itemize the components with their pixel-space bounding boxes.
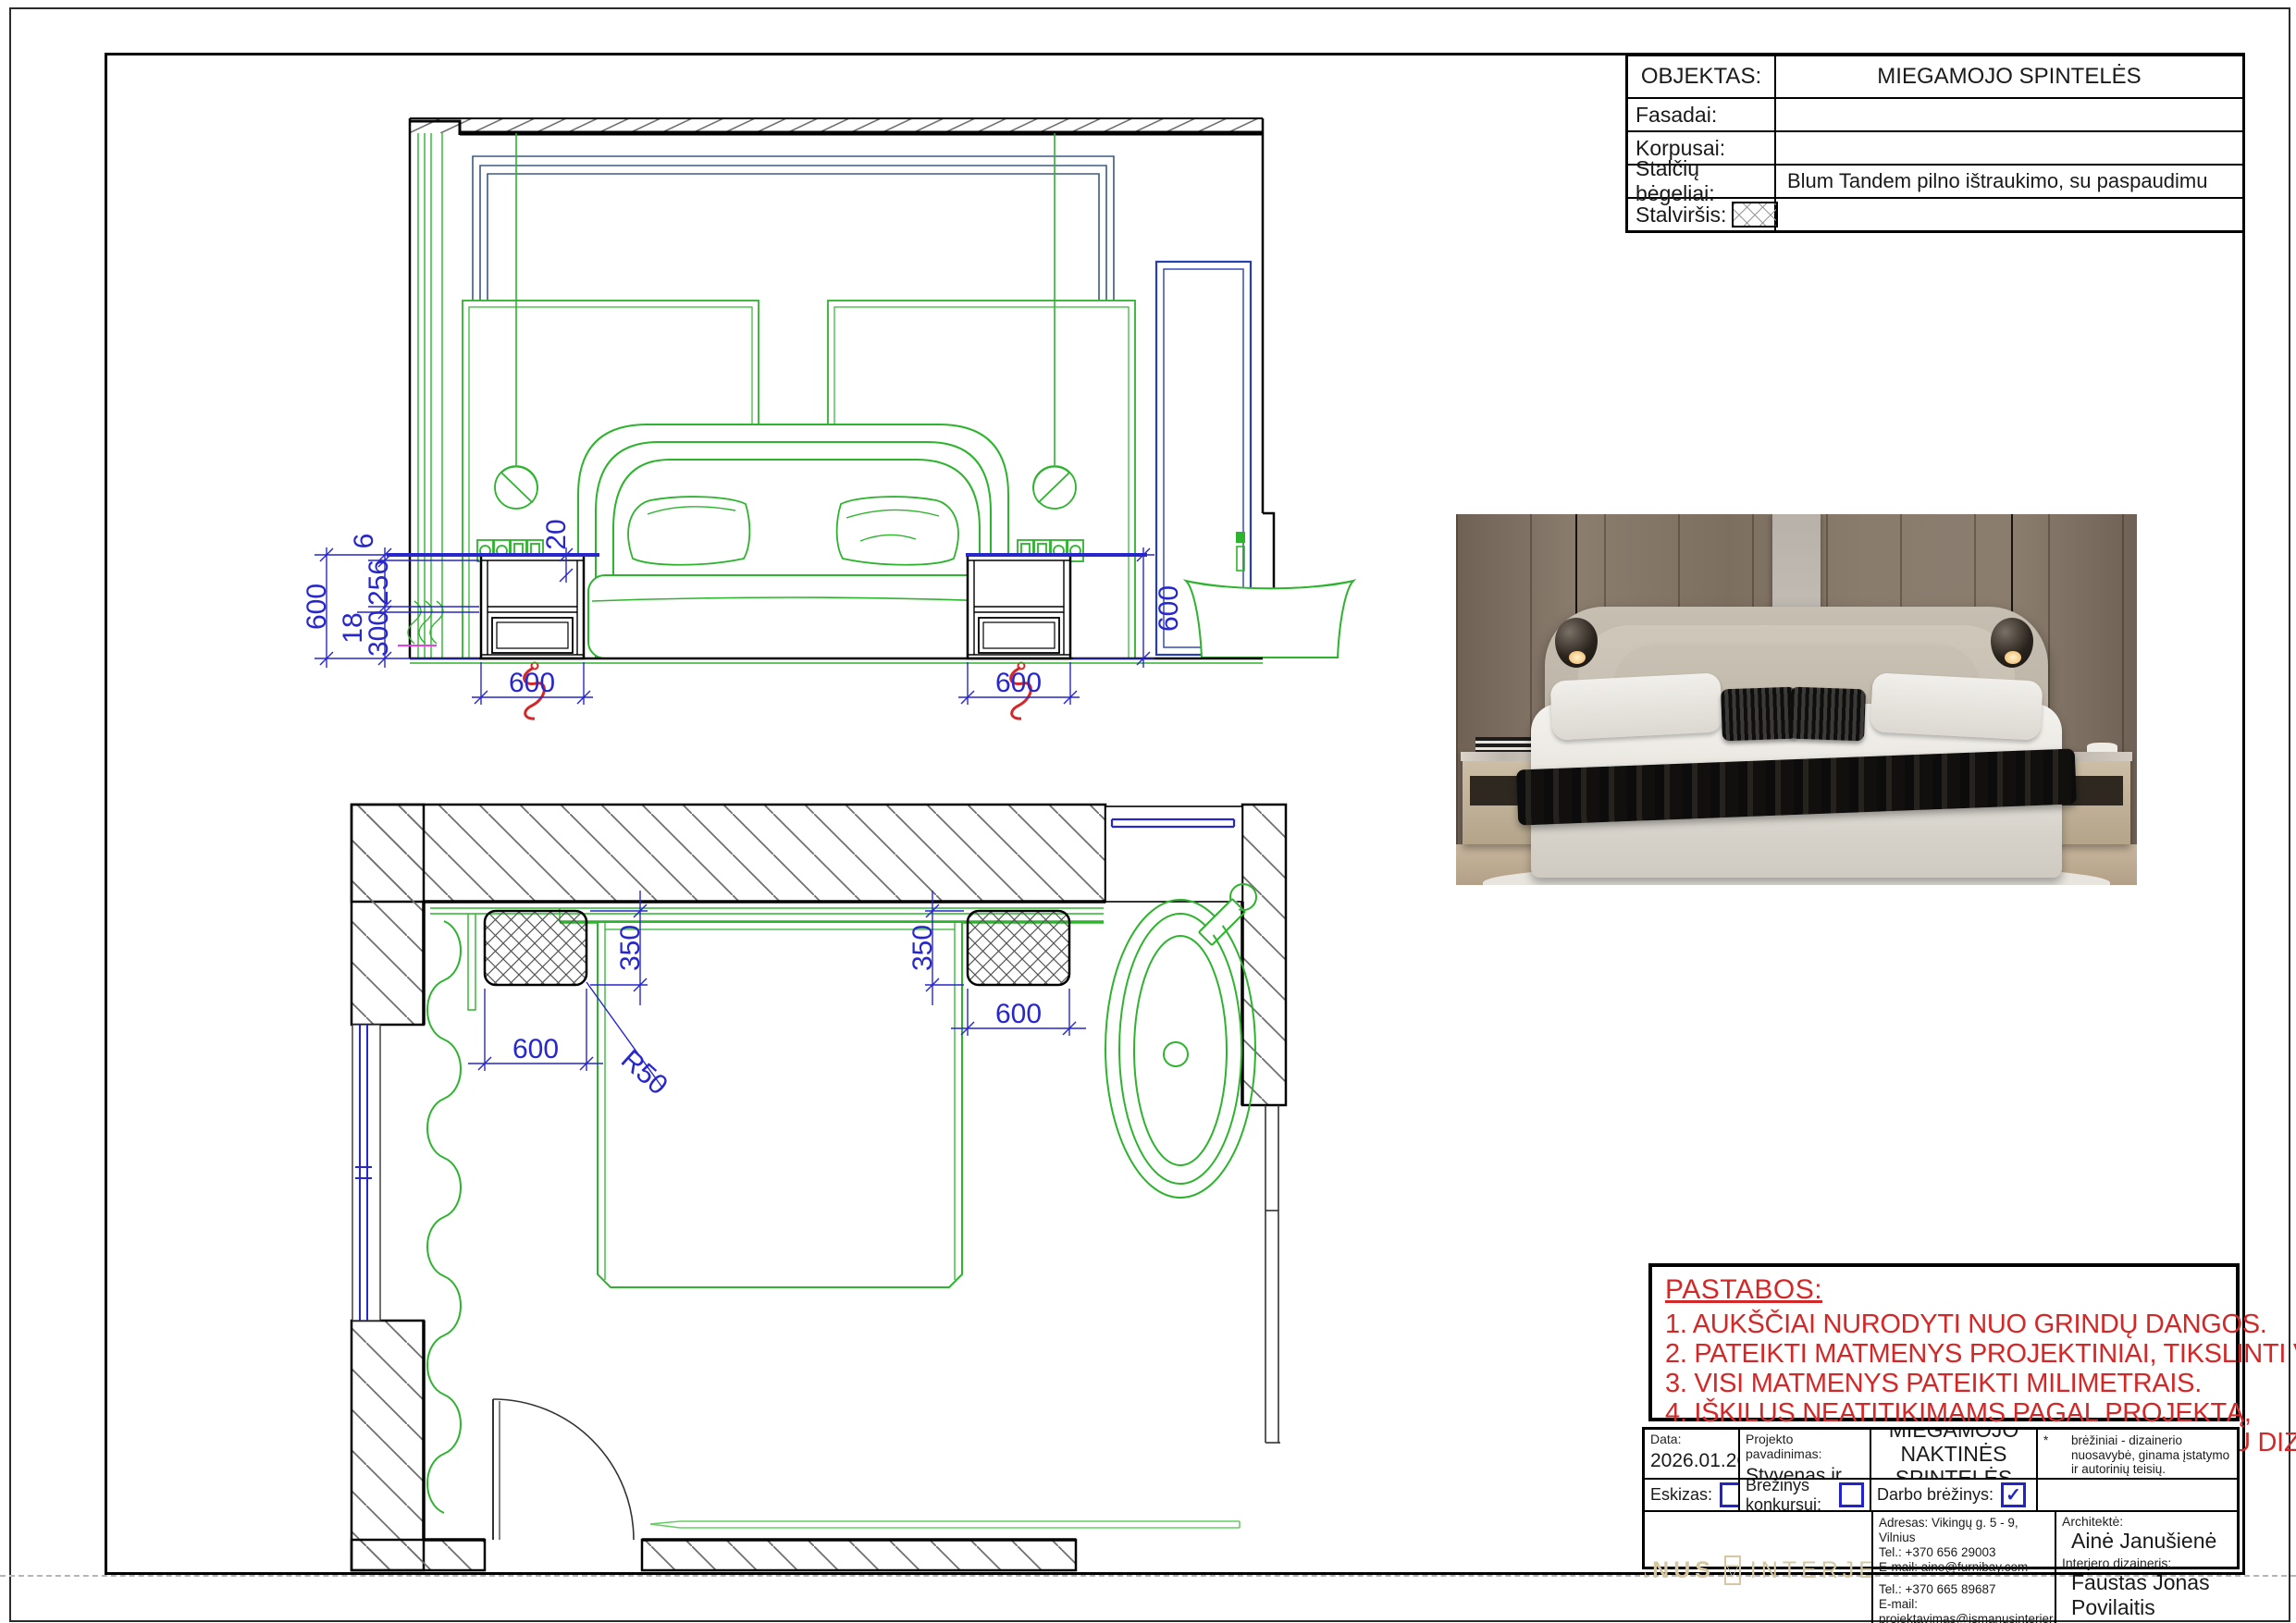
svg-text:300: 300 bbox=[364, 610, 394, 657]
date-value: 2026.01.26 bbox=[1650, 1450, 1733, 1472]
disclaimer-text: brėžiniai - dizainerio nuosavybė, ginama… bbox=[2071, 1433, 2231, 1477]
sketch-label: Eskizas: bbox=[1650, 1485, 1712, 1505]
nightstand-right-elevation bbox=[968, 555, 1070, 658]
spec-value bbox=[1776, 99, 2242, 130]
disclaimer-cell: * brėžiniai - dizainerio nuosavybė, gina… bbox=[2038, 1430, 2237, 1478]
note-item: 1. AUKŠČIAI NURODYTI NUO GRINDŲ DANGOS. bbox=[1665, 1309, 2223, 1339]
project-label: Projekto pavadinimas: bbox=[1746, 1432, 1864, 1461]
title-block: Data: 2026.01.26 Projekto pavadinimas: S… bbox=[1642, 1427, 2240, 1569]
countertop-hatch-swatch bbox=[1732, 202, 1778, 227]
spec-value: Blum Tandem pilno ištraukimo, su paspaud… bbox=[1776, 166, 2242, 197]
contact-email-2: E-mail: projektavimas@ismanusinterjeras.… bbox=[1879, 1597, 2049, 1623]
drawing-title-line2: NAKTINĖS SPINTELĖS bbox=[1877, 1442, 2031, 1478]
sketch-checkbox bbox=[1720, 1482, 1740, 1507]
credits-cell: Architektė: Ainė Janušienė Interjero diz… bbox=[2056, 1512, 2237, 1623]
disclaimer-text: statyti pagal aprobuotus darbo brėžinius… bbox=[2071, 1477, 2231, 1479]
disclaimer-mark: * bbox=[2043, 1433, 2071, 1477]
contact-phone-1: Tel.: +370 656 29003 bbox=[1879, 1545, 2049, 1560]
svg-text:600: 600 bbox=[512, 1034, 559, 1064]
sketch-cell: Eskizas: bbox=[1645, 1480, 1740, 1510]
spec-label: OBJEKTAS: bbox=[1628, 56, 1776, 97]
svg-text:600: 600 bbox=[995, 668, 1042, 698]
svg-text:600: 600 bbox=[509, 668, 555, 698]
disclaimer-item: * brėžiniai - dizainerio nuosavybė, gina… bbox=[2043, 1433, 2231, 1477]
working-checkbox-checked: ✓ bbox=[2001, 1482, 2026, 1507]
photo-pendant-cord-right bbox=[2011, 514, 2013, 625]
contact-gap bbox=[1879, 1575, 2049, 1582]
spec-label: Stalčių bėgeliai: bbox=[1628, 166, 1776, 197]
photo-books bbox=[1475, 737, 1532, 752]
spec-row-stalvirsis: Stalviršis: bbox=[1628, 197, 2242, 230]
contest-label: Brėžinys konkursui: bbox=[1746, 1480, 1832, 1510]
designer-name: Faustas Jonas Povilaitis bbox=[2071, 1570, 2231, 1620]
contact-address: Adresas: Vikingų g. 5 - 9, Vilnius bbox=[1879, 1516, 2049, 1545]
contact-email-1: E-mail: aine@furnibay.com bbox=[1879, 1560, 2049, 1575]
svg-text:600: 600 bbox=[302, 584, 332, 630]
contest-checkbox bbox=[1839, 1482, 1864, 1507]
disclaimer-spacer bbox=[2038, 1480, 2237, 1510]
spec-row-fasadai: Fasadai: bbox=[1628, 97, 2242, 130]
photo-accent-pillow-right bbox=[1789, 687, 1866, 742]
drawing-sheet: 600 6 256 18 300 20 600 600 600 bbox=[0, 0, 2296, 1623]
notes-pastabos: PASTABOS: 1. AUKŠČIAI NURODYTI NUO GRIND… bbox=[1648, 1263, 2240, 1421]
contest-cell: Brėžinys konkursui: bbox=[1740, 1480, 1871, 1510]
working-label: Darbo brėžinys: bbox=[1877, 1485, 1994, 1505]
title-block-row-contacts: IŠMANUS ▽ INTERJERAS Adresas: Vikingų g.… bbox=[1645, 1512, 2237, 1623]
drawing-title-line1: MIEGAMOJO bbox=[1889, 1430, 2019, 1442]
svg-text:350: 350 bbox=[615, 925, 646, 971]
title-block-row-checkboxes: Eskizas: Brėžinys konkursui: Darbo brėži… bbox=[1645, 1480, 2237, 1512]
svg-text:350: 350 bbox=[907, 925, 938, 971]
nightstand-left-plan bbox=[485, 911, 586, 985]
svg-text:6: 6 bbox=[349, 534, 379, 549]
spec-value bbox=[1776, 199, 2242, 230]
contact-phone-2: Tel.: +370 665 89687 bbox=[1879, 1582, 2049, 1597]
date-cell: Data: 2026.01.26 bbox=[1645, 1430, 1740, 1478]
designer-label: Interjero dizaineris: bbox=[2062, 1555, 2231, 1570]
disclaimer-mark: ** bbox=[2043, 1477, 2071, 1479]
nightstand-right-plan bbox=[968, 911, 1069, 985]
note-item: 4. IŠKILUS NEATITIKIMAMS PAGAL PROJEKTĄ, bbox=[1665, 1398, 2223, 1428]
svg-text:600: 600 bbox=[995, 999, 1042, 1029]
notes-title: PASTABOS: bbox=[1665, 1274, 2223, 1306]
working-drawing-cell: Darbo brėžinys: ✓ bbox=[1871, 1480, 2038, 1510]
date-label: Data: bbox=[1650, 1432, 1733, 1446]
architect-name: Ainė Janušienė bbox=[2071, 1529, 2231, 1554]
spec-table: OBJEKTAS: MIEGAMOJO SPINTELĖS Fasadai: K… bbox=[1625, 54, 2245, 233]
contact-info: Adresas: Vikingų g. 5 - 9, Vilnius Tel.:… bbox=[1871, 1512, 2056, 1623]
logo-triangle-icon: ▽ bbox=[1724, 1555, 1741, 1585]
nightstand-left-elevation bbox=[481, 555, 584, 658]
note-item: 2. PATEIKTI MATMENYS PROJEKTINIAI, TIKSL… bbox=[1665, 1339, 2223, 1369]
architect-label: Architektė: bbox=[2062, 1514, 2231, 1529]
spec-label-text: Stalviršis: bbox=[1636, 203, 1726, 227]
svg-text:20: 20 bbox=[541, 519, 572, 549]
company-logo: IŠMANUS ▽ INTERJERAS bbox=[1645, 1512, 1871, 1623]
title-block-row-info: Data: 2026.01.26 Projekto pavadinimas: S… bbox=[1645, 1430, 2237, 1480]
spec-label: Fasadai: bbox=[1628, 99, 1776, 130]
spec-row-objektas: OBJEKTAS: MIEGAMOJO SPINTELĖS bbox=[1628, 56, 2242, 97]
photo-accent-pillow-left bbox=[1721, 687, 1797, 742]
svg-text:600: 600 bbox=[1154, 585, 1184, 632]
photo-pendant-cord-left bbox=[1575, 514, 1577, 625]
note-item: 3. VISI MATMENYS PATEIKTI MILIMETRAIS. bbox=[1665, 1369, 2223, 1398]
spec-value: MIEGAMOJO SPINTELĖS bbox=[1776, 56, 2242, 97]
logo-text-2: INTERJERAS bbox=[1750, 1557, 1871, 1584]
project-value: Styvenas ir Silvestras bbox=[1746, 1465, 1864, 1478]
spec-value bbox=[1776, 132, 2242, 164]
svg-text:256: 256 bbox=[364, 559, 394, 606]
elevation-view: 600 6 256 18 300 20 600 600 600 bbox=[302, 118, 1353, 719]
bathtub-plan bbox=[1105, 884, 1256, 1198]
check-icon: ✓ bbox=[2006, 1483, 2021, 1506]
spec-label: Stalviršis: bbox=[1628, 199, 1776, 230]
photo-decor bbox=[2087, 743, 2117, 752]
reference-render-photo bbox=[1456, 514, 2137, 885]
drawing-title-cell: MIEGAMOJO NAKTINĖS SPINTELĖS bbox=[1871, 1430, 2038, 1478]
spec-row-begeliai: Stalčių bėgeliai: Blum Tandem pilno ištr… bbox=[1628, 164, 2242, 197]
logo-glyph: ▽ bbox=[1726, 1561, 1739, 1580]
plan-view: 350 600 R50 350 600 bbox=[352, 805, 1286, 1570]
photo-pillow-right bbox=[1870, 673, 2043, 742]
project-cell: Projekto pavadinimas: Styvenas ir Silves… bbox=[1740, 1430, 1871, 1478]
disclaimer-item: ** statyti pagal aprobuotus darbo brėžin… bbox=[2043, 1477, 2231, 1479]
photo-pillow-left bbox=[1549, 673, 1722, 742]
logo-text-1: IŠMANUS bbox=[1645, 1557, 1715, 1584]
